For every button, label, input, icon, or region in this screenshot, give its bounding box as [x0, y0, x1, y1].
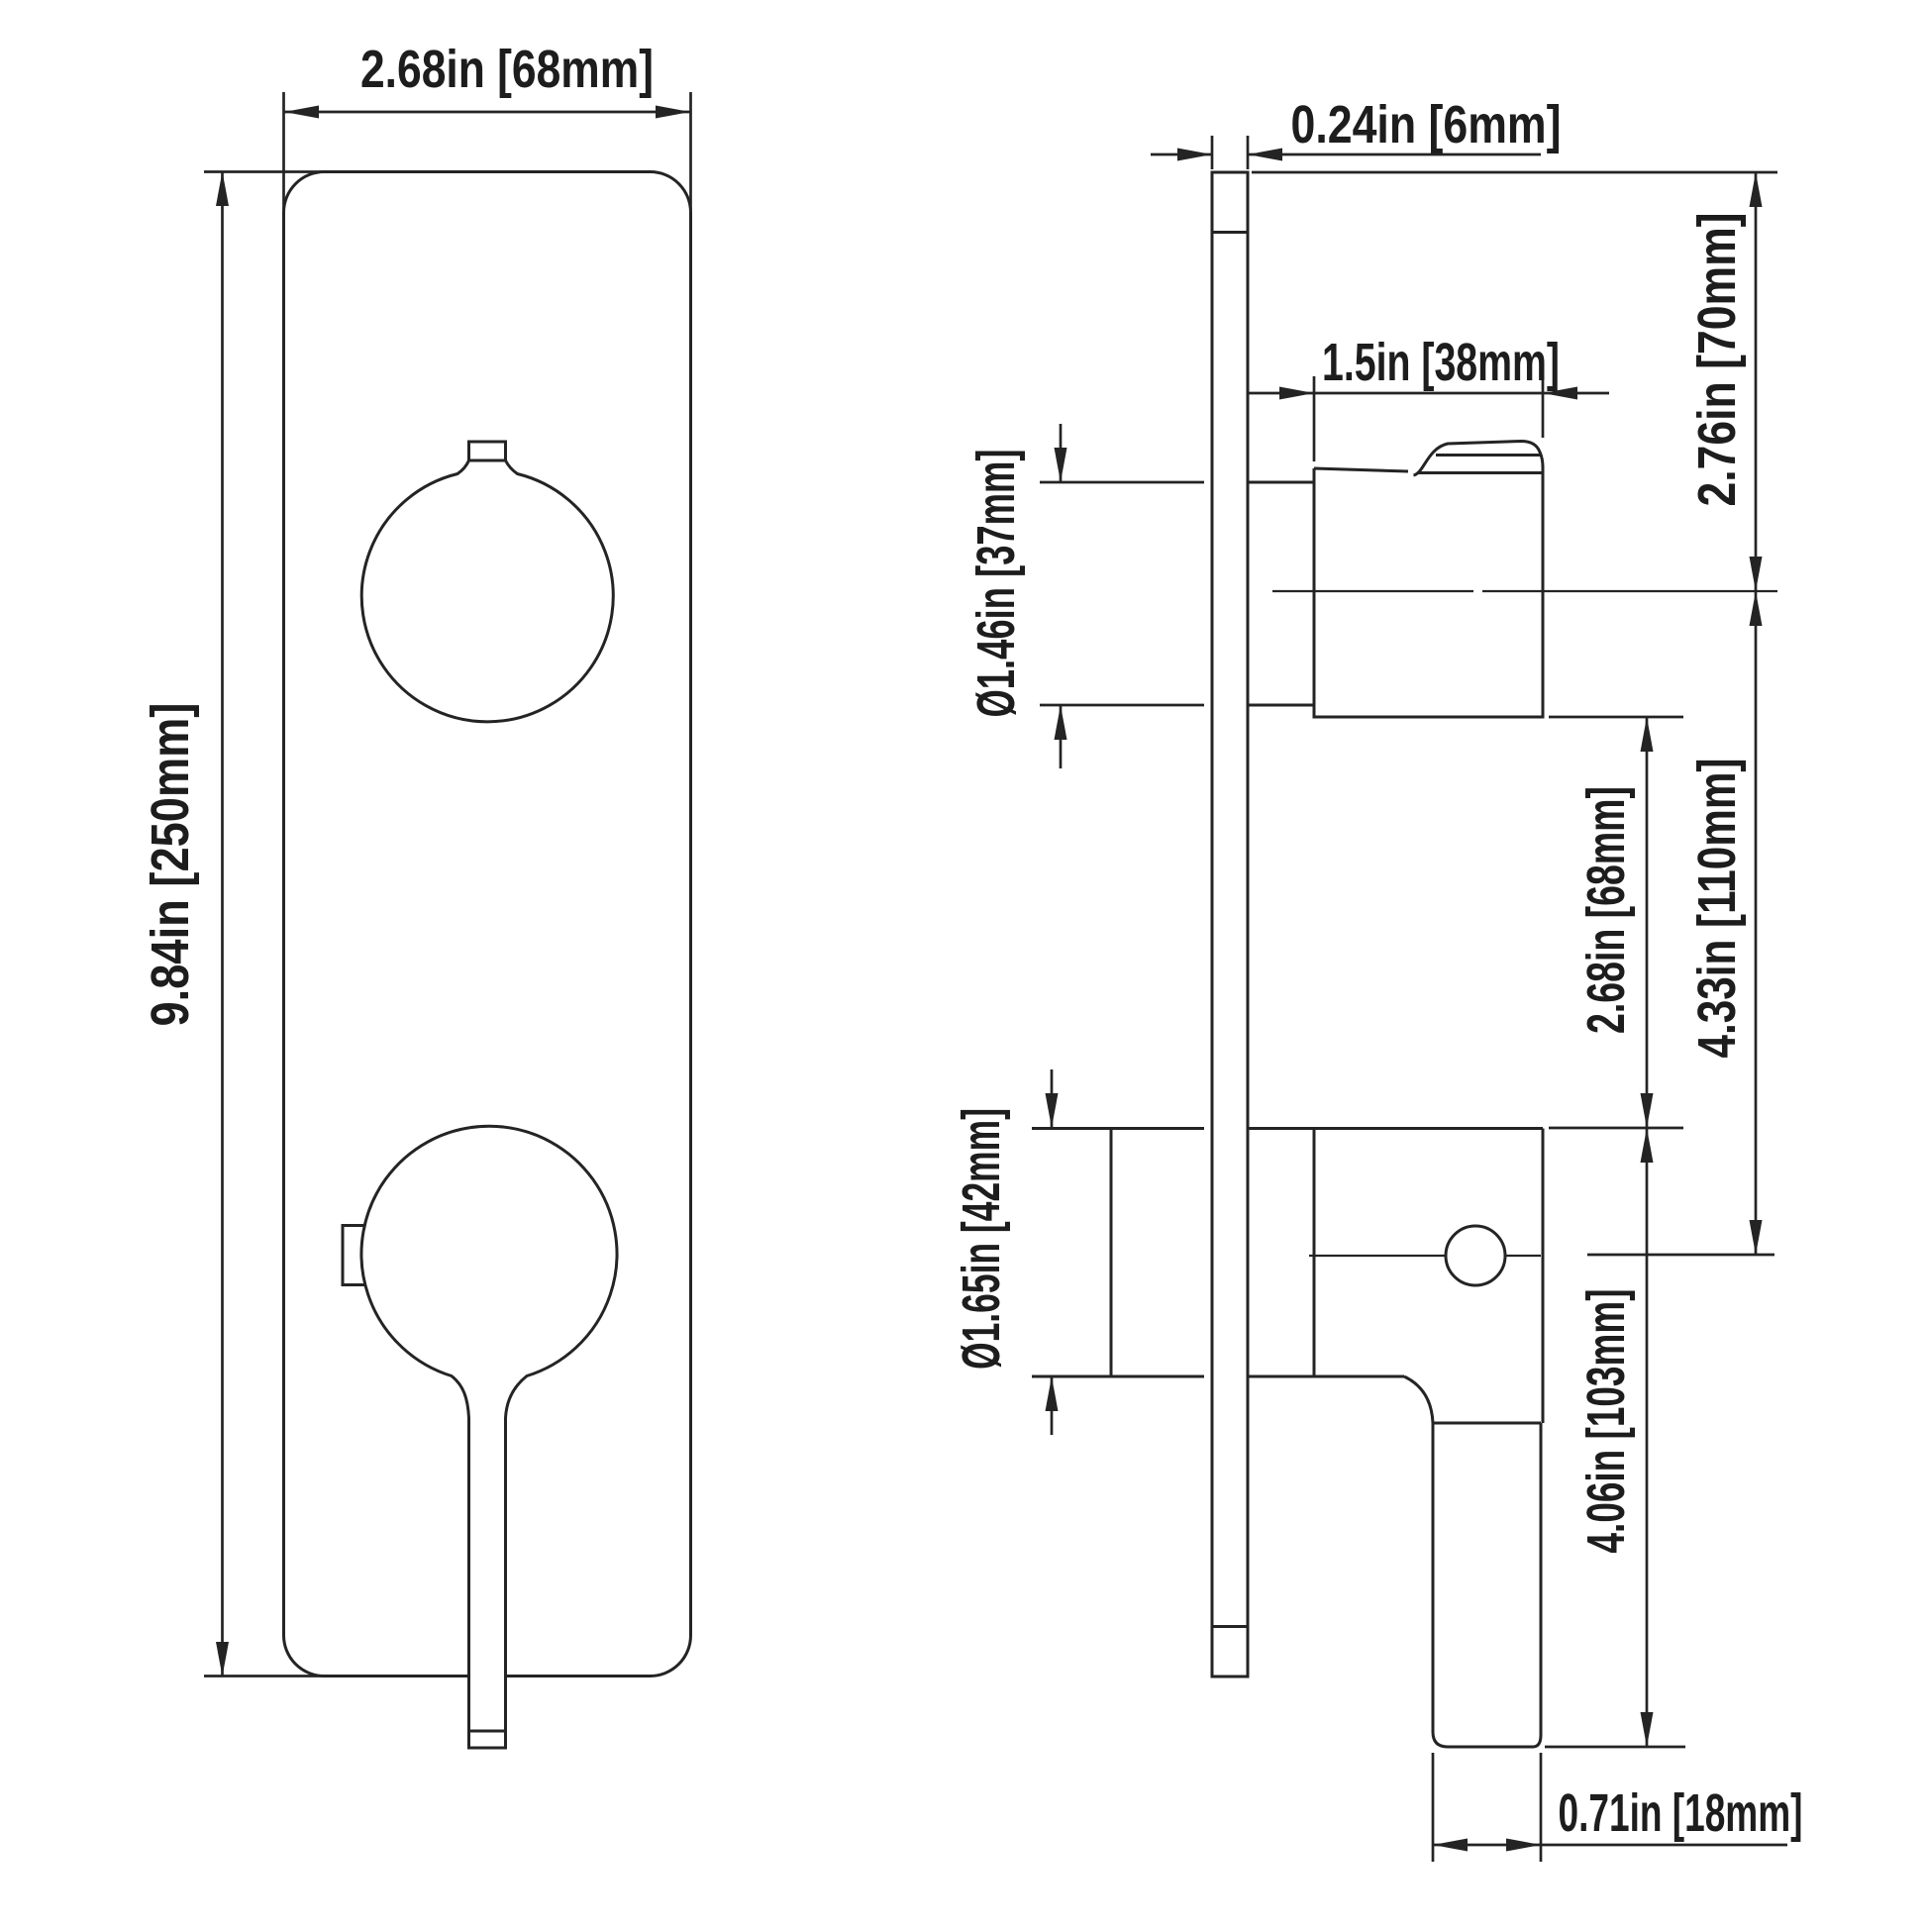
svg-text:0.71in [18mm]: 0.71in [18mm]	[1559, 1783, 1803, 1843]
svg-text:Ø1.46in [37mm]: Ø1.46in [37mm]	[966, 450, 1026, 718]
svg-text:2.68in [68mm]: 2.68in [68mm]	[1576, 786, 1636, 1034]
svg-text:4.06in [103mm]: 4.06in [103mm]	[1576, 1289, 1636, 1554]
svg-text:Ø1.65in [42mm]: Ø1.65in [42mm]	[952, 1108, 1011, 1370]
svg-text:2.76in [70mm]: 2.76in [70mm]	[1687, 213, 1747, 507]
svg-text:2.68in [68mm]: 2.68in [68mm]	[360, 40, 654, 99]
svg-text:9.84in [250mm]: 9.84in [250mm]	[141, 703, 200, 1027]
svg-text:0.24in [6mm]: 0.24in [6mm]	[1291, 95, 1562, 154]
svg-text:1.5in [38mm]: 1.5in [38mm]	[1322, 333, 1560, 392]
svg-text:4.33in [110mm]: 4.33in [110mm]	[1687, 759, 1747, 1059]
